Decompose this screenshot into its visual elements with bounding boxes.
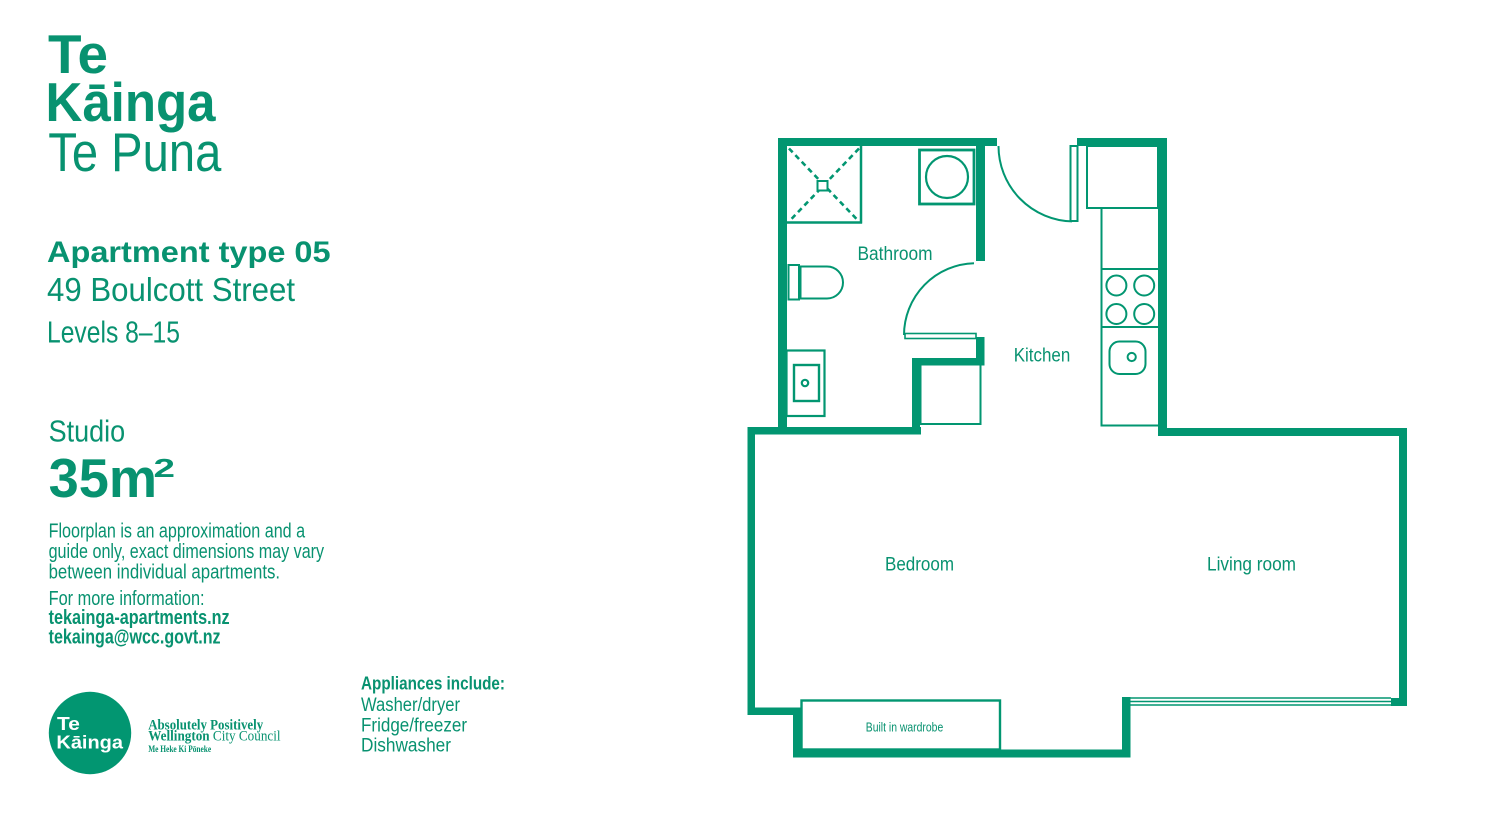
svg-text:Appliances include:: Appliances include: (361, 673, 505, 693)
svg-text:Te Puna: Te Puna (48, 121, 221, 183)
svg-text:Kāinga: Kāinga (56, 733, 124, 753)
svg-text:Washer/dryer: Washer/dryer (361, 695, 461, 716)
svg-text:Apartment type 05: Apartment type 05 (47, 236, 331, 269)
svg-text:Studio: Studio (49, 414, 126, 449)
svg-text:49 Boulcott Street: 49 Boulcott Street (47, 271, 295, 308)
svg-text:Built in wardrobe: Built in wardrobe (866, 721, 944, 735)
svg-text:between individual apartments.: between individual apartments. (49, 562, 281, 584)
svg-text:Te: Te (57, 714, 80, 734)
svg-text:Fridge/freezer: Fridge/freezer (361, 715, 468, 736)
svg-text:Dishwasher: Dishwasher (361, 735, 452, 756)
svg-text:Bathroom: Bathroom (858, 244, 933, 265)
svg-text:Kitchen: Kitchen (1014, 346, 1071, 367)
svg-text:Wellington City Council: Wellington City Council (148, 729, 280, 745)
svg-text:Me Heke Ki Pōneke: Me Heke Ki Pōneke (148, 745, 211, 755)
svg-text:tekainga@wcc.govt.nz: tekainga@wcc.govt.nz (49, 627, 221, 649)
svg-text:35m: 35m (49, 447, 158, 509)
svg-text:Floorplan is an approximation: Floorplan is an approximation and a (49, 521, 306, 543)
svg-text:Bedroom: Bedroom (885, 555, 954, 576)
svg-text:Living room: Living room (1207, 555, 1296, 576)
svg-text:2: 2 (154, 453, 176, 483)
svg-text:Levels 8–15: Levels 8–15 (47, 316, 180, 350)
svg-text:guide only, exact dimensions m: guide only, exact dimensions may vary (49, 541, 325, 563)
